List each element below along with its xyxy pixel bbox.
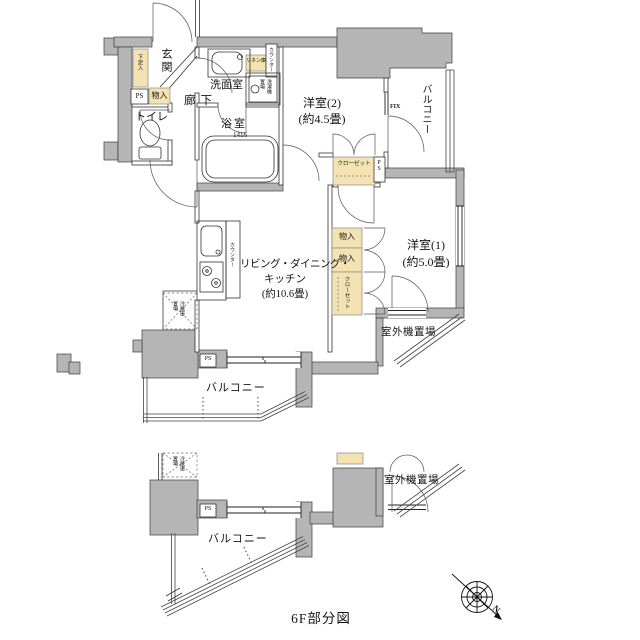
entrance-door-arc xyxy=(153,3,192,42)
toilet-icon xyxy=(139,120,161,159)
label-laundry: 洗濯機置場 xyxy=(258,79,272,97)
label-outdoor-unit: 室外機置場 xyxy=(381,327,436,339)
outdoor-unit-railing xyxy=(394,314,465,367)
label-ps-south: PS xyxy=(200,356,216,363)
label-bathroom: 浴室 xyxy=(221,118,247,131)
stove-icon xyxy=(200,262,223,292)
label-ldk-line1: リビング・ダイニング・ xyxy=(240,259,330,271)
washbasin-icon xyxy=(208,49,250,77)
label-fix-window: FIX xyxy=(390,104,400,111)
fix-window xyxy=(385,92,388,115)
balcony-railing-6f xyxy=(161,537,309,617)
label-genkan: 玄関 xyxy=(160,48,171,74)
floor-plan-page: 玄関 下足入 PS 物入 トイレ 廊下 洗面室 リネン庫 カウンター 洗濯機置場… xyxy=(0,0,640,640)
label-outdoor-unit-6f: 室外機置場 xyxy=(384,475,439,487)
label-bathroom-size: 1416 xyxy=(227,131,253,139)
label-ps-entrance: PS xyxy=(131,92,148,100)
label-closet-bedroom1: クローゼット xyxy=(343,276,349,316)
label-storage-mid-1: 物入 xyxy=(332,232,362,241)
label-washroom: 洗面室 xyxy=(210,79,243,92)
label-bedroom1-area: (約5.0畳) xyxy=(395,256,457,270)
label-ps-6f: PS xyxy=(200,506,216,513)
label-balcony-south: バルコニー xyxy=(206,382,266,395)
label-bedroom2-name: 洋室(2) xyxy=(297,97,347,111)
label-balcony-6f: バルコニー xyxy=(208,533,268,546)
east-balcony-railing xyxy=(446,70,454,172)
kitchen-sink-icon xyxy=(201,226,222,256)
south-balcony-railing xyxy=(143,414,261,421)
label-toilet: トイレ xyxy=(135,111,168,124)
label-bedroom2-area: (約4.5畳) xyxy=(292,113,352,127)
label-fridge: 冷蔵庫置場 xyxy=(171,301,185,319)
label-ps-east: PS xyxy=(376,160,382,178)
label-shoe-cupboard: 下足入 xyxy=(136,54,142,84)
label-linen: リネン庫 xyxy=(246,59,266,65)
label-balcony-east: バルコニー xyxy=(420,84,430,142)
label-fridge-6f: 冷蔵庫置場 xyxy=(171,456,185,474)
plan-caption: 6F部分図 xyxy=(290,611,352,627)
label-closet-bedroom2: クローゼット xyxy=(335,161,373,167)
label-counter-kitchen: カウンター xyxy=(229,242,234,272)
label-counter-washroom: カウンター xyxy=(268,47,273,77)
label-ldk-line3: (約10.6畳) xyxy=(240,289,330,301)
label-storage-entrance: 物入 xyxy=(149,91,170,100)
break-mark xyxy=(166,588,182,601)
bathtub-icon xyxy=(202,136,278,182)
closet-stub-box xyxy=(337,453,363,464)
label-bedroom1-name: 洋室(1) xyxy=(398,239,454,253)
label-hallway: 廊下 xyxy=(184,95,217,108)
label-ldk-line2: キッチン xyxy=(240,274,330,286)
